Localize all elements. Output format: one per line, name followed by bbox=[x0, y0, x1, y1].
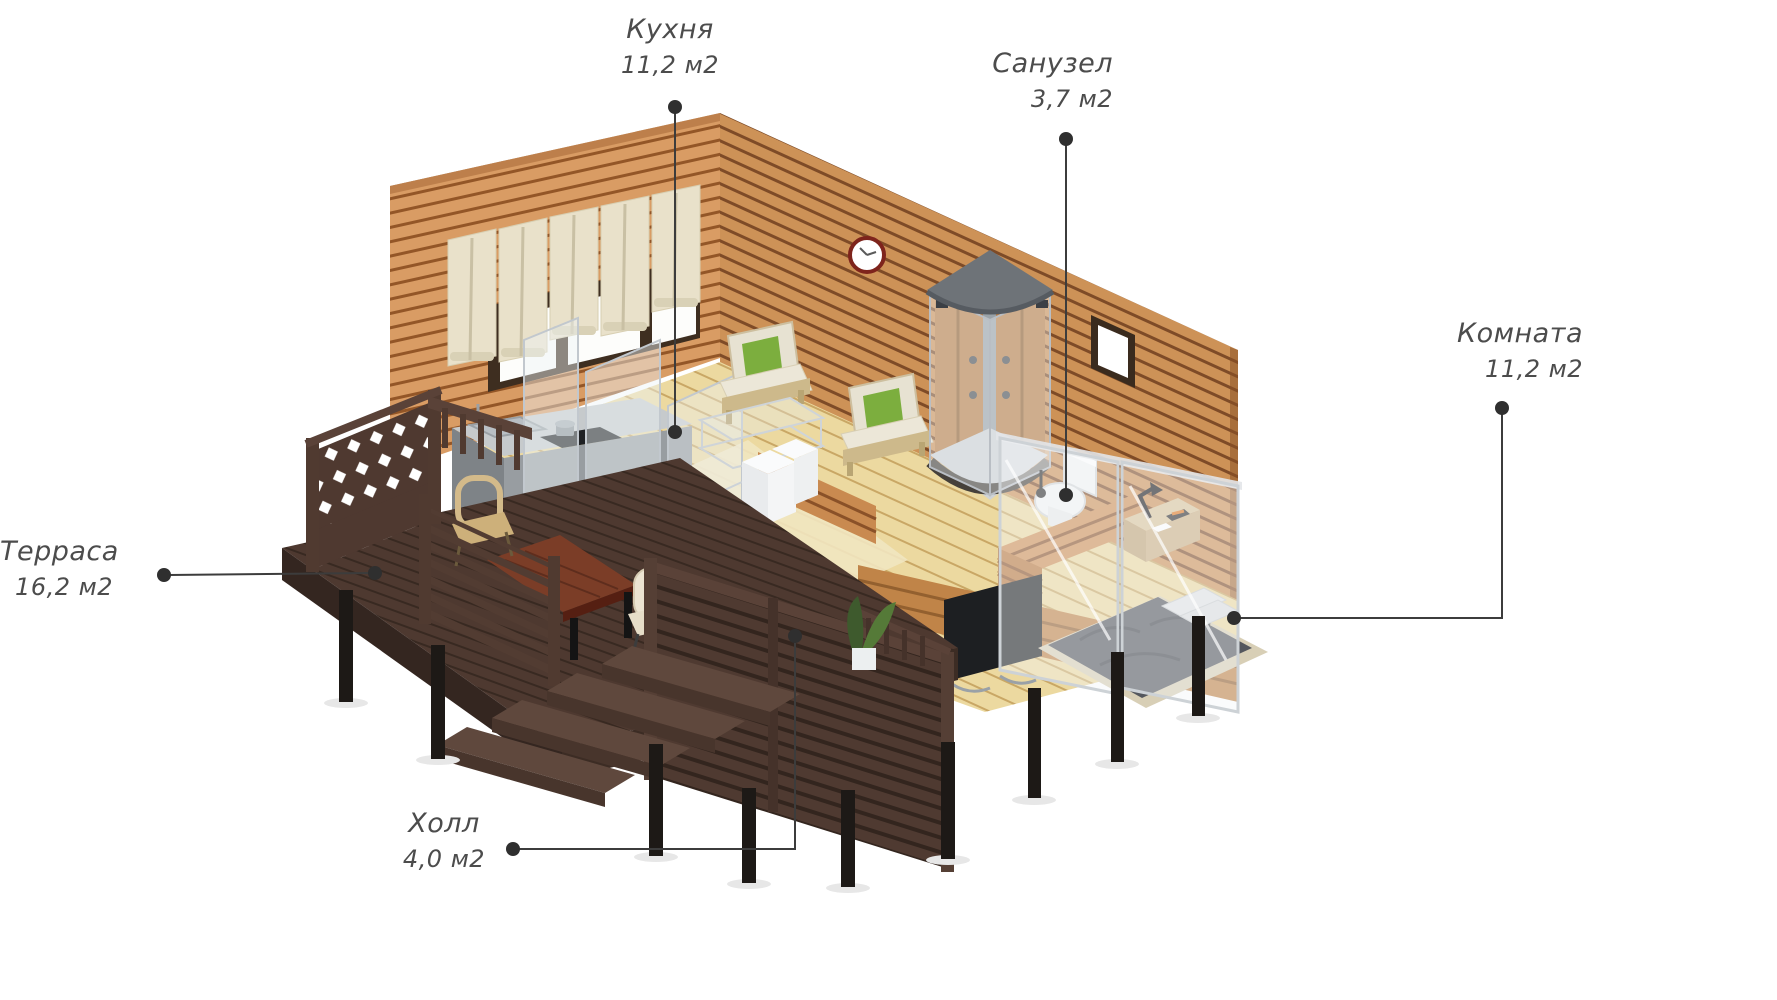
room-area: 11,2 м2 bbox=[1383, 356, 1583, 382]
room-name: Кухня bbox=[570, 14, 770, 45]
room-label-terrace: Терраса 16,2 м2 bbox=[0, 536, 113, 600]
room-name: Комната bbox=[1383, 318, 1583, 349]
wall-clock-icon bbox=[850, 238, 884, 272]
room-area: 11,2 м2 bbox=[570, 52, 770, 78]
leader-room bbox=[1227, 401, 1509, 625]
isometric-house-illustration bbox=[0, 0, 1777, 1000]
room-label-hall: Холл 4,0 м2 bbox=[364, 808, 524, 872]
room-area: 16,2 м2 bbox=[0, 574, 113, 600]
room-name: Терраса bbox=[0, 536, 113, 567]
room-area: 4,0 м2 bbox=[364, 846, 524, 872]
room-label-bathroom: Санузел 3,7 м2 bbox=[913, 48, 1113, 112]
room-name: Санузел bbox=[913, 48, 1113, 79]
floor-plan-canvas: Кухня 11,2 м2 Санузел 3,7 м2 Комната 11,… bbox=[0, 0, 1777, 1000]
room-name: Холл bbox=[364, 808, 524, 839]
room-label-kitchen: Кухня 11,2 м2 bbox=[570, 14, 770, 78]
room-area: 3,7 м2 bbox=[913, 86, 1113, 112]
room-label-room: Комната 11,2 м2 bbox=[1383, 318, 1583, 382]
